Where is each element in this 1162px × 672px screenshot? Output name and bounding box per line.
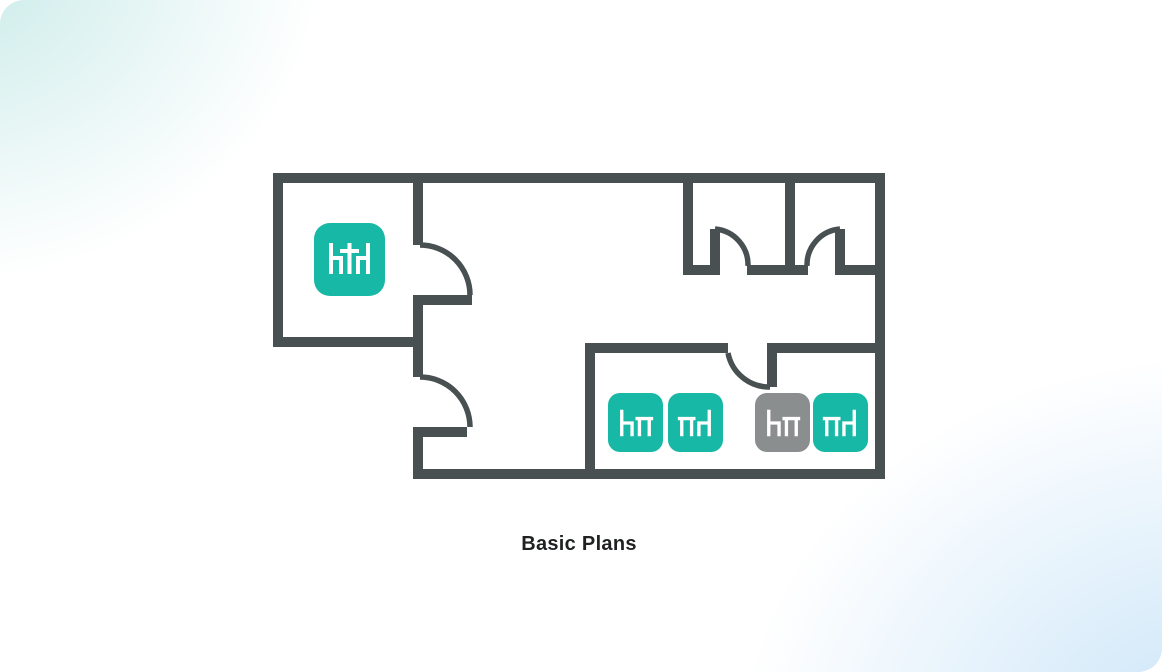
seat-icon-1[interactable] bbox=[608, 393, 663, 452]
door-arc-hallway-lower bbox=[420, 377, 470, 427]
plan-caption: Basic Plans bbox=[273, 533, 885, 556]
door-arc-bottomright-room bbox=[728, 353, 770, 387]
table-two-chairs-icon[interactable] bbox=[314, 223, 385, 296]
table-chair-glyph bbox=[668, 393, 723, 452]
seat-icon-2[interactable] bbox=[668, 393, 723, 452]
seat-icon-4[interactable] bbox=[813, 393, 868, 452]
floor-plan-svg bbox=[0, 0, 1162, 672]
plan-card: Basic Plans bbox=[0, 0, 1162, 672]
table-chair-glyph bbox=[813, 393, 868, 452]
seat-icon-3[interactable] bbox=[755, 393, 810, 452]
chair-table-glyph bbox=[755, 393, 810, 452]
chair-table-glyph bbox=[608, 393, 663, 452]
chair-table-chair-glyph bbox=[314, 223, 385, 296]
wall-bottomright-top-2 bbox=[772, 348, 885, 387]
door-arc-hallway-upper bbox=[420, 245, 470, 295]
wall-mid-middle bbox=[418, 300, 472, 377]
